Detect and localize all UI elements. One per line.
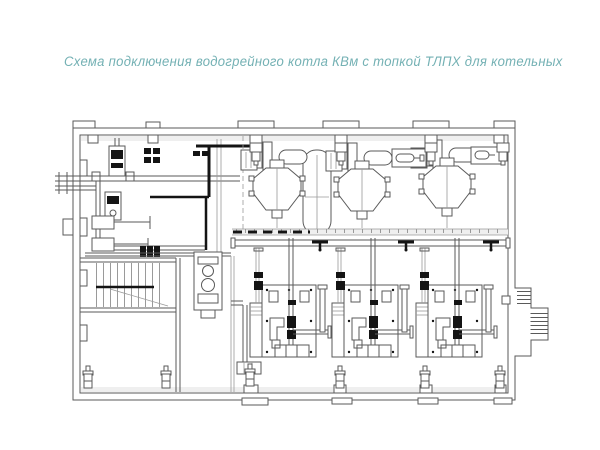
- storage-room: [83, 366, 171, 388]
- valve-2: [398, 242, 414, 252]
- boiler-unit-3: [416, 238, 497, 357]
- column-fixture-4: [495, 366, 505, 388]
- pump-3: [92, 216, 114, 229]
- cyclone-1: [241, 142, 307, 218]
- boiler-unit-1: [250, 238, 331, 357]
- room-column-2: [161, 366, 171, 388]
- cyclone-2: [326, 143, 392, 219]
- column-fixture-2: [335, 366, 345, 388]
- page: Схема подключения водогрейного котла КВм…: [0, 0, 600, 450]
- feeder-unit: [194, 252, 222, 318]
- column-fixture-3: [420, 366, 430, 388]
- valve-3: [483, 242, 499, 252]
- valve-1: [312, 242, 328, 252]
- boiler-unit-2: [332, 238, 413, 357]
- pump-4: [92, 238, 114, 251]
- fan-box-2: [392, 149, 426, 167]
- room-column-1: [83, 366, 93, 388]
- bottom-columns: [242, 364, 512, 405]
- floor-plan: [0, 0, 600, 450]
